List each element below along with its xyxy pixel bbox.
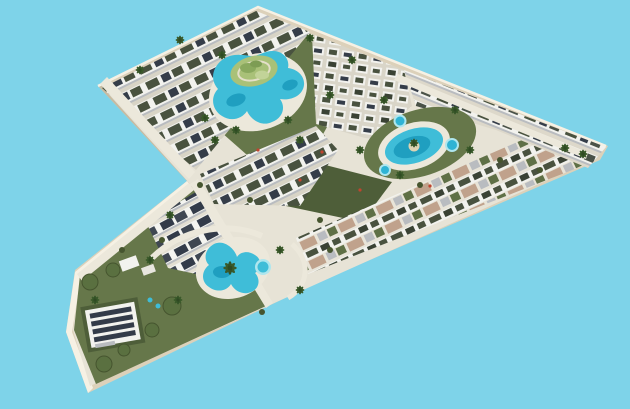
palm-tree-icon [146, 256, 155, 265]
palm-tree-icon [276, 246, 285, 255]
flower-accent [320, 150, 323, 153]
shrub [317, 217, 323, 223]
palm-tree-icon [91, 296, 100, 305]
shrub [327, 247, 333, 253]
palm-tree-icon [201, 114, 210, 123]
palm-tree-icon [176, 36, 185, 45]
palm-tree-icon [561, 144, 570, 153]
pool-lounger [148, 298, 153, 303]
palm-tree-icon [579, 150, 588, 159]
palm-tree-icon [232, 126, 241, 135]
tree-cluster [82, 274, 98, 290]
palm-tree-icon [306, 34, 315, 43]
flower-accent [298, 178, 301, 181]
palm-tree-icon [166, 211, 175, 220]
shrub [159, 237, 165, 243]
palm-tree-icon [296, 136, 305, 145]
palm-tree-icon [356, 146, 365, 155]
tree-cluster [106, 263, 120, 277]
palm-tree-icon [223, 261, 237, 275]
palm-tree-icon [174, 296, 183, 305]
tree-cluster [96, 356, 112, 372]
tree-cluster [145, 323, 159, 337]
palm-tree-icon [211, 136, 220, 145]
shrub [497, 157, 503, 163]
palm-tree-icon [284, 116, 293, 125]
palm-tree-icon [451, 106, 460, 115]
island-hedge-2 [255, 71, 269, 80]
tree-cluster [118, 344, 130, 356]
palm-tree-icon [348, 56, 357, 65]
palm-tree-icon [218, 51, 227, 60]
flower-accent [256, 148, 259, 151]
palm-tree-icon [296, 286, 305, 295]
shrub [537, 167, 543, 173]
round-pool-3 [381, 166, 389, 174]
round-pool-1 [396, 117, 405, 126]
palm-tree-icon [380, 96, 389, 105]
palm-tree-icon [466, 146, 475, 155]
render-canvas [0, 0, 630, 409]
flower-accent [358, 188, 361, 191]
shrub [417, 182, 423, 188]
shrub [119, 247, 125, 253]
site-plan-render [0, 0, 630, 409]
palm-tree-icon [136, 66, 145, 75]
pool-lounger [156, 304, 161, 309]
shrub [259, 309, 265, 315]
palm-tree-icon [396, 171, 405, 180]
palm-tree-icon [410, 139, 419, 148]
island-hedge-3 [250, 61, 262, 68]
shrub [197, 182, 203, 188]
round-pool-2 [447, 140, 457, 150]
shrub [247, 197, 253, 203]
palm-tree-icon [326, 91, 335, 100]
flower-accent [428, 184, 431, 187]
south-round-pool [258, 262, 269, 273]
